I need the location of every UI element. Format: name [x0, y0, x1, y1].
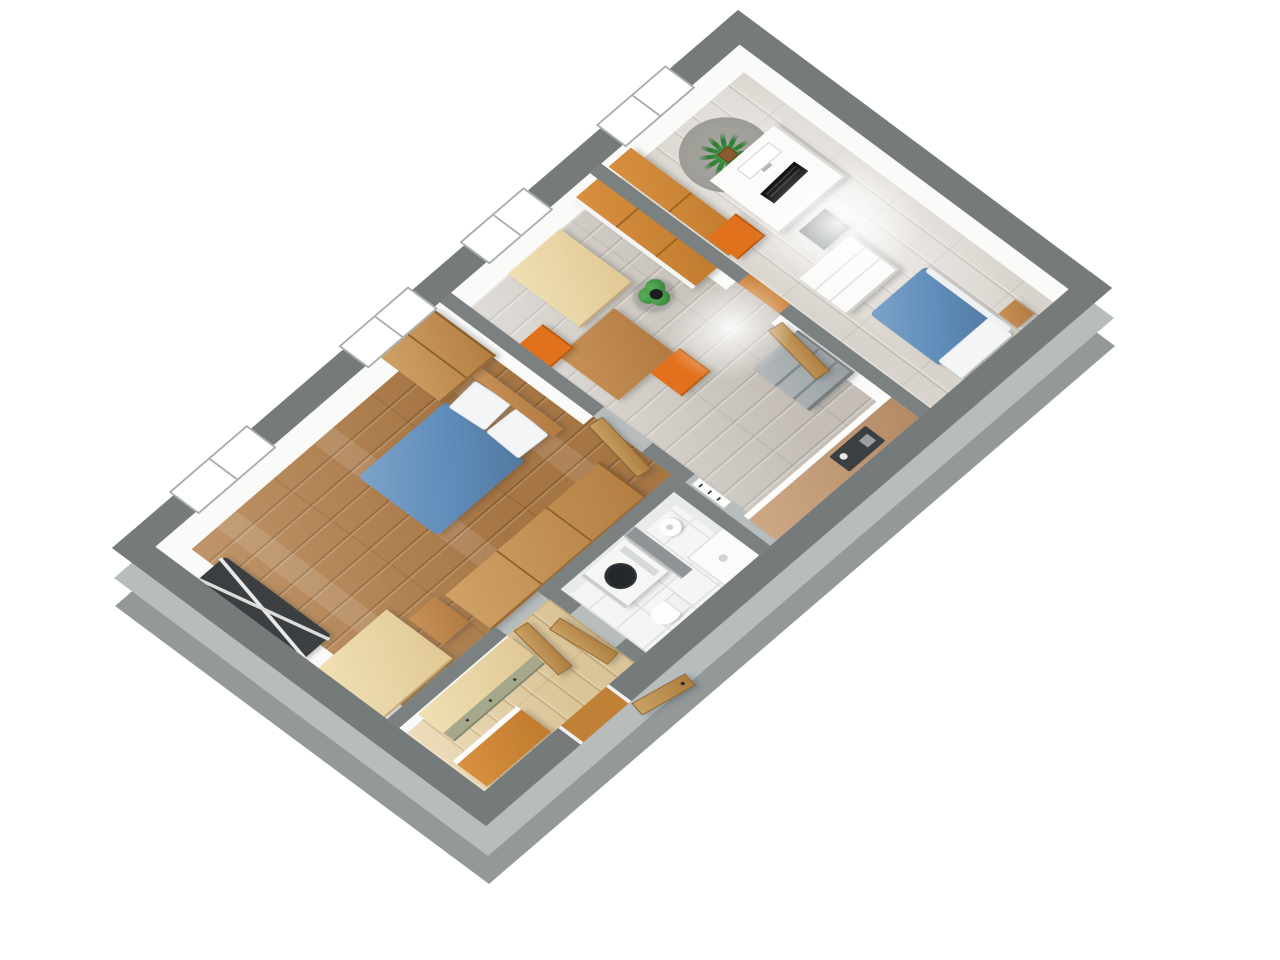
floor-plan-render [0, 0, 1280, 960]
